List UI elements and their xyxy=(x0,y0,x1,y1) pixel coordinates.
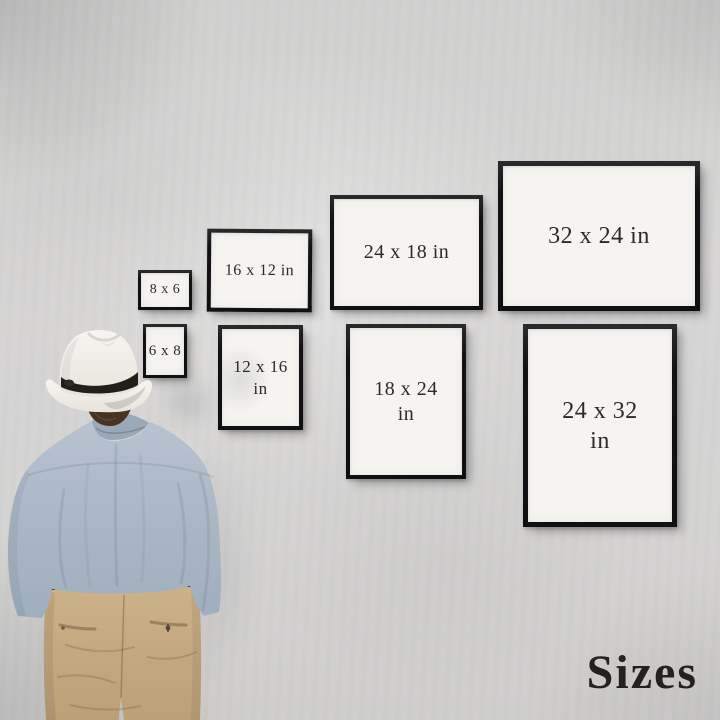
gallery-wall-photo: 8 x 6 16 x 12 in 24 x 18 in 32 x 24 in 6… xyxy=(0,0,720,720)
frame-16x12: 16 x 12 in xyxy=(207,229,313,313)
man-figure xyxy=(0,325,240,720)
khaki-pants xyxy=(44,581,201,720)
frame-size-label: 12 x 16 xyxy=(233,356,288,377)
frame-size-label: 24 x 18 in xyxy=(364,240,450,265)
frame-size-label: 24 x 32 xyxy=(562,396,638,426)
frame-mat: 16 x 12 in xyxy=(211,233,309,309)
frame-mat: 32 x 24 in xyxy=(503,166,695,306)
frame-mat: 24 x 18 in xyxy=(334,199,479,306)
fedora-hat xyxy=(46,330,152,412)
frame-size-label: 8 x 6 xyxy=(150,281,181,299)
frame-18x24: 18 x 24 in xyxy=(346,324,466,479)
frame-size-label: 18 x 24 xyxy=(374,377,438,402)
frame-size-label: 16 x 12 in xyxy=(225,260,295,280)
frame-mat: 18 x 24 in xyxy=(350,328,462,475)
frame-24x18: 24 x 18 in xyxy=(330,195,483,310)
frame-size-unit: in xyxy=(590,426,610,456)
frame-32x24: 32 x 24 in xyxy=(498,161,700,311)
frame-mat: 8 x 6 xyxy=(141,273,189,307)
frame-size-unit: in xyxy=(253,378,267,399)
frame-size-unit: in xyxy=(398,402,415,427)
frame-8x6: 8 x 6 xyxy=(138,270,192,310)
sizes-caption: Sizes xyxy=(587,645,698,700)
frame-24x32: 24 x 32 in xyxy=(523,324,677,527)
frame-size-label: 32 x 24 in xyxy=(548,221,650,251)
frame-mat: 24 x 32 in xyxy=(528,329,672,522)
